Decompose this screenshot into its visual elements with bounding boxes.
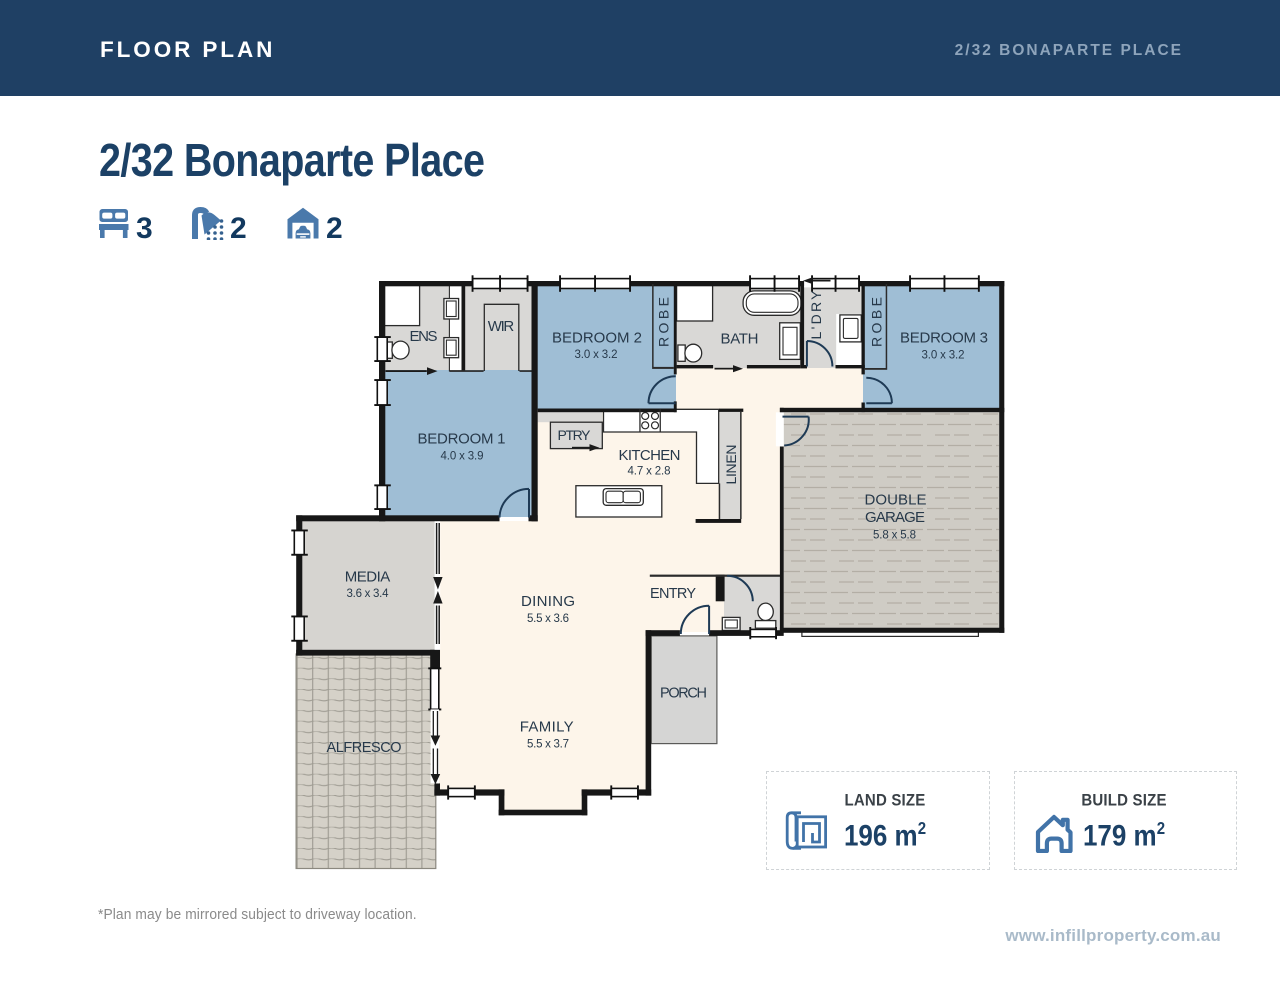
svg-text:ENTRY: ENTRY — [650, 586, 696, 602]
svg-text:4.0 x 3.9: 4.0 x 3.9 — [441, 451, 484, 463]
svg-text:BATH: BATH — [721, 331, 759, 348]
svg-text:PORCH: PORCH — [660, 686, 707, 702]
svg-text:WIR: WIR — [488, 318, 515, 335]
svg-text:5.5 x 3.6: 5.5 x 3.6 — [527, 613, 569, 625]
svg-text:MEDIA: MEDIA — [345, 569, 391, 586]
svg-text:LINEN: LINEN — [723, 445, 739, 485]
svg-text:KITCHEN: KITCHEN — [619, 447, 681, 464]
svg-text:DOUBLE: DOUBLE — [865, 492, 927, 509]
svg-text:BEDROOM 3: BEDROOM 3 — [900, 330, 988, 347]
svg-text:FAMILY: FAMILY — [520, 719, 574, 736]
svg-text:L'DRY: L'DRY — [808, 290, 824, 340]
svg-text:5.8 x 5.8: 5.8 x 5.8 — [873, 530, 916, 542]
svg-text:BEDROOM 2: BEDROOM 2 — [552, 330, 642, 347]
svg-text:3.6 x 3.4: 3.6 x 3.4 — [347, 588, 390, 600]
svg-text:BEDROOM 1: BEDROOM 1 — [418, 431, 506, 448]
svg-text:GARAGE: GARAGE — [865, 509, 925, 526]
svg-text:ENS: ENS — [410, 328, 438, 345]
svg-text:4.7 x 2.8: 4.7 x 2.8 — [628, 466, 671, 478]
svg-text:5.5 x 3.7: 5.5 x 3.7 — [527, 739, 569, 751]
svg-text:PTRY: PTRY — [558, 427, 592, 443]
svg-text:3.0 x 3.2: 3.0 x 3.2 — [922, 350, 965, 362]
svg-text:ALFRESCO: ALFRESCO — [327, 740, 402, 756]
svg-text:3.0 x 3.2: 3.0 x 3.2 — [575, 349, 618, 361]
svg-text:DINING: DINING — [521, 593, 575, 610]
